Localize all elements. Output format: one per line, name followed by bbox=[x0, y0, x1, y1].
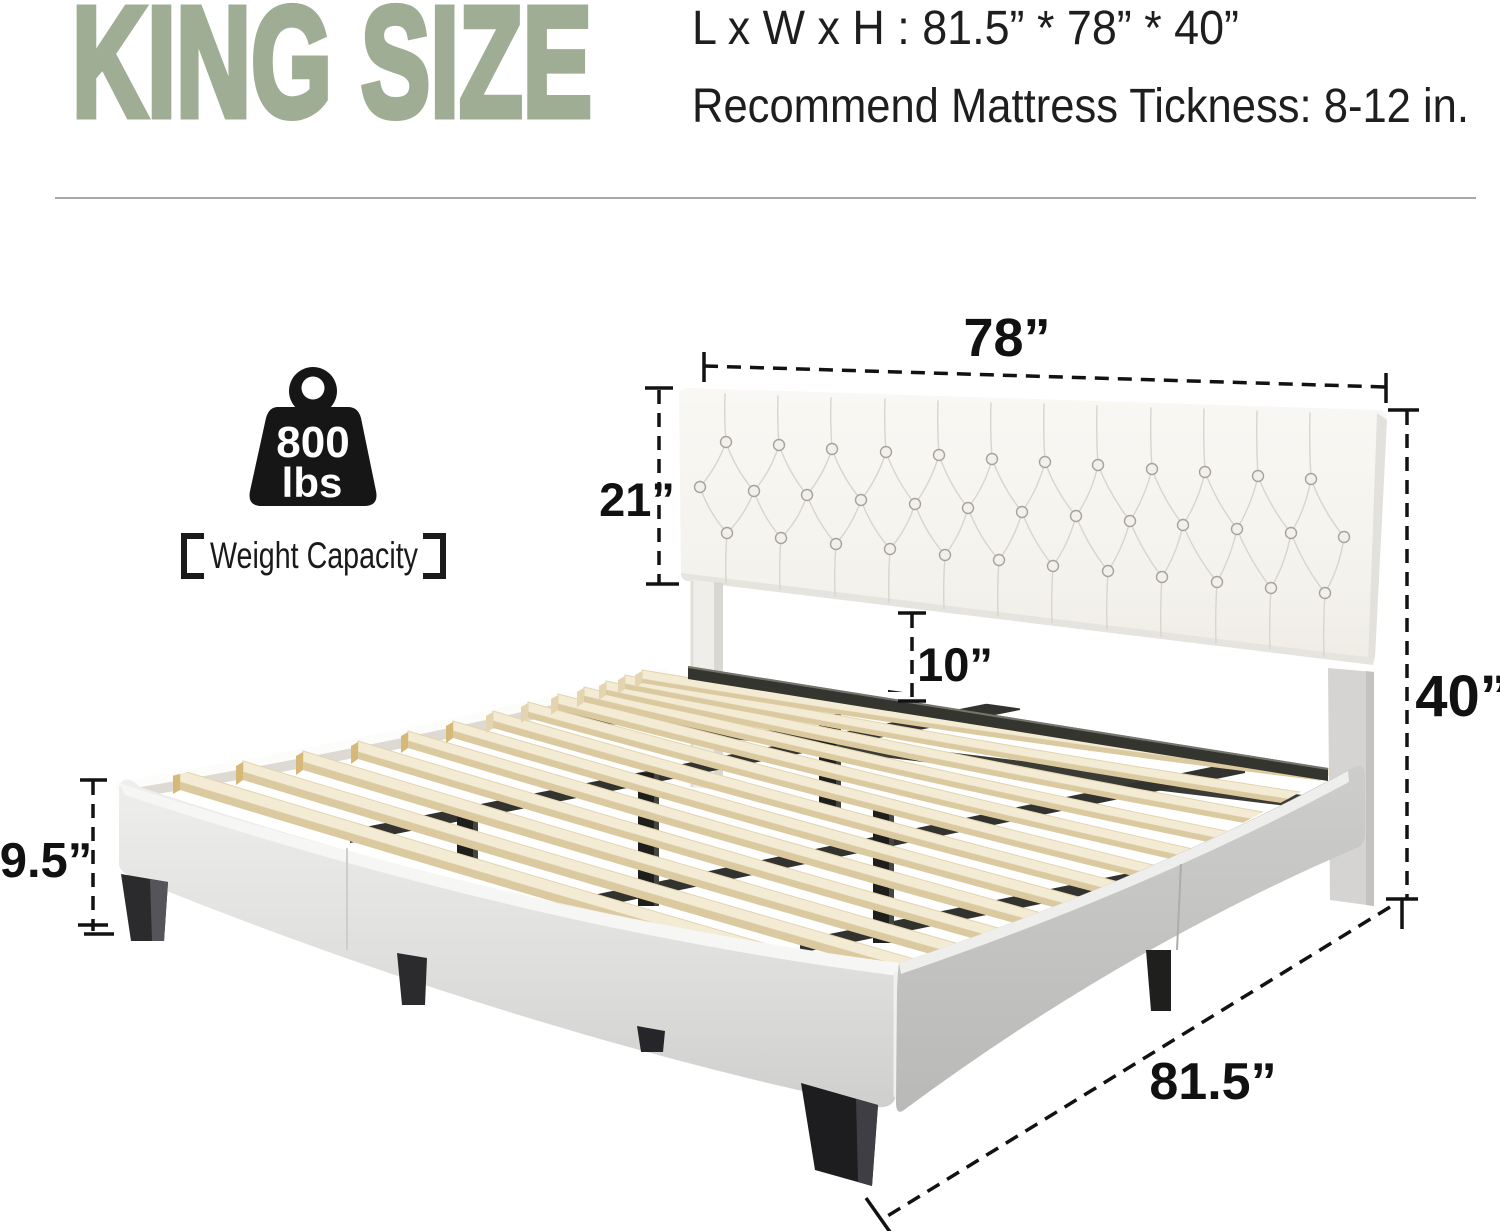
svg-text:KING SIZE: KING SIZE bbox=[72, 0, 592, 150]
svg-text:Weight Capacity: Weight Capacity bbox=[210, 535, 418, 576]
svg-text:lbs: lbs bbox=[282, 459, 343, 506]
svg-text:10”: 10” bbox=[917, 638, 993, 691]
svg-text:78”: 78” bbox=[963, 308, 1050, 368]
svg-text:21”: 21” bbox=[599, 473, 675, 526]
svg-text:Recommend Mattress Tickness: 8: Recommend Mattress Tickness: 8-12 in. bbox=[692, 80, 1469, 133]
svg-text:40”: 40” bbox=[1415, 664, 1500, 729]
svg-text:L x W x H : 81.5” * 78” * 40”: L x W x H : 81.5” * 78” * 40” bbox=[692, 2, 1239, 55]
svg-text:81.5”: 81.5” bbox=[1149, 1053, 1276, 1111]
svg-text:9.5”: 9.5” bbox=[0, 834, 92, 888]
